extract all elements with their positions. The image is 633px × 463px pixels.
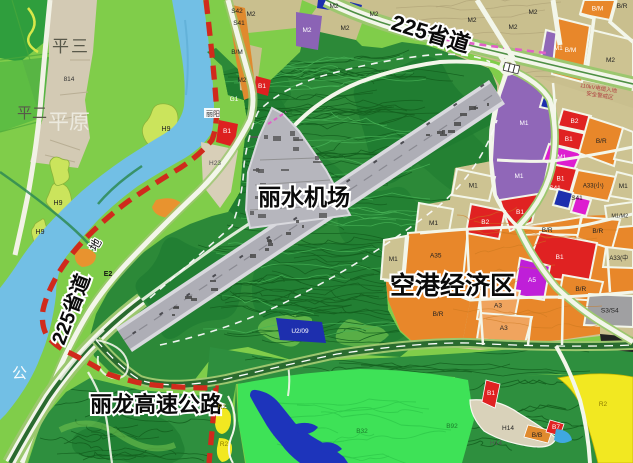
svg-text:H9: H9: [36, 229, 45, 236]
svg-text:平原: 平原: [48, 111, 90, 134]
svg-text:B/M: B/M: [565, 47, 577, 54]
svg-text:B1: B1: [223, 128, 231, 135]
svg-text:B1: B1: [487, 390, 495, 397]
svg-text:A33(小): A33(小): [583, 182, 604, 190]
svg-text:M1: M1: [619, 183, 628, 190]
svg-text:R2: R2: [218, 404, 227, 411]
svg-text:B1: B1: [556, 254, 564, 261]
svg-text:S41: S41: [549, 185, 561, 192]
svg-text:U2/09: U2/09: [291, 328, 309, 335]
svg-text:M1: M1: [429, 220, 438, 227]
svg-text:A5: A5: [528, 277, 536, 284]
svg-text:B1: B1: [557, 175, 565, 182]
svg-text:B/R: B/R: [433, 311, 444, 318]
svg-text:M1: M1: [389, 256, 398, 263]
svg-text:H14: H14: [490, 440, 502, 447]
svg-text:M2: M2: [467, 17, 476, 24]
svg-text:B/M: B/M: [231, 49, 243, 56]
svg-text:B/M: B/M: [592, 6, 604, 13]
svg-text:B32: B32: [356, 428, 368, 435]
svg-text:M2: M2: [606, 57, 615, 64]
svg-text:S42: S42: [231, 8, 243, 15]
svg-text:A33(中: A33(中: [609, 254, 628, 262]
svg-text:S41: S41: [233, 20, 245, 27]
svg-text:平三: 平三: [52, 37, 90, 56]
svg-text:S3/S4: S3/S4: [601, 308, 619, 315]
svg-text:M1: M1: [554, 45, 563, 52]
svg-text:M1: M1: [469, 183, 478, 190]
svg-text:B/R: B/R: [596, 138, 607, 145]
svg-text:丽阳: 丽阳: [206, 109, 220, 118]
svg-text:B92: B92: [446, 423, 458, 430]
svg-text:M2: M2: [246, 11, 255, 18]
svg-text:H9: H9: [162, 126, 171, 133]
svg-text:814: 814: [64, 76, 75, 83]
svg-text:A3: A3: [494, 303, 502, 310]
svg-text:M2: M2: [528, 9, 537, 16]
svg-text:空港经济区: 空港经济区: [390, 271, 515, 300]
svg-text:R2: R2: [220, 441, 229, 448]
svg-text:B1: B1: [258, 83, 266, 90]
svg-text:B/R: B/R: [592, 228, 603, 235]
svg-text:M2: M2: [369, 11, 378, 18]
svg-text:M1/M2: M1/M2: [611, 214, 628, 220]
svg-text:B/R: B/R: [575, 286, 586, 293]
svg-text:G1: G1: [230, 96, 239, 103]
svg-text:B1: B1: [516, 209, 524, 216]
svg-text:H9: H9: [54, 200, 63, 207]
svg-text:B1: B1: [565, 136, 573, 143]
svg-text:M1: M1: [557, 154, 566, 161]
svg-text:M1: M1: [519, 120, 528, 127]
svg-text:R2: R2: [599, 401, 608, 408]
svg-text:B2: B2: [571, 118, 579, 125]
svg-text:丽水机场: 丽水机场: [258, 184, 350, 210]
svg-text:M2: M2: [340, 25, 349, 32]
svg-text:M2: M2: [237, 77, 246, 84]
svg-text:公: 公: [12, 365, 27, 382]
svg-text:M2: M2: [508, 24, 517, 31]
svg-text:S41: S41: [571, 195, 583, 202]
svg-text:B/B: B/B: [532, 432, 542, 439]
svg-text:H23: H23: [209, 160, 221, 167]
svg-text:平二: 平二: [17, 105, 47, 122]
svg-text:B/R: B/R: [542, 227, 553, 234]
svg-text:M2: M2: [302, 27, 311, 34]
svg-text:B2: B2: [481, 219, 489, 226]
svg-text:B/R: B/R: [617, 3, 628, 10]
svg-text:E2: E2: [104, 271, 113, 278]
svg-text:A3: A3: [500, 325, 508, 332]
svg-text:A35: A35: [430, 253, 442, 260]
svg-text:M2: M2: [329, 3, 338, 10]
svg-text:M1: M1: [514, 173, 523, 180]
svg-text:H14: H14: [502, 425, 514, 432]
svg-text:B7: B7: [552, 424, 560, 431]
svg-text:丽龙高速公路: 丽龙高速公路: [90, 392, 223, 417]
